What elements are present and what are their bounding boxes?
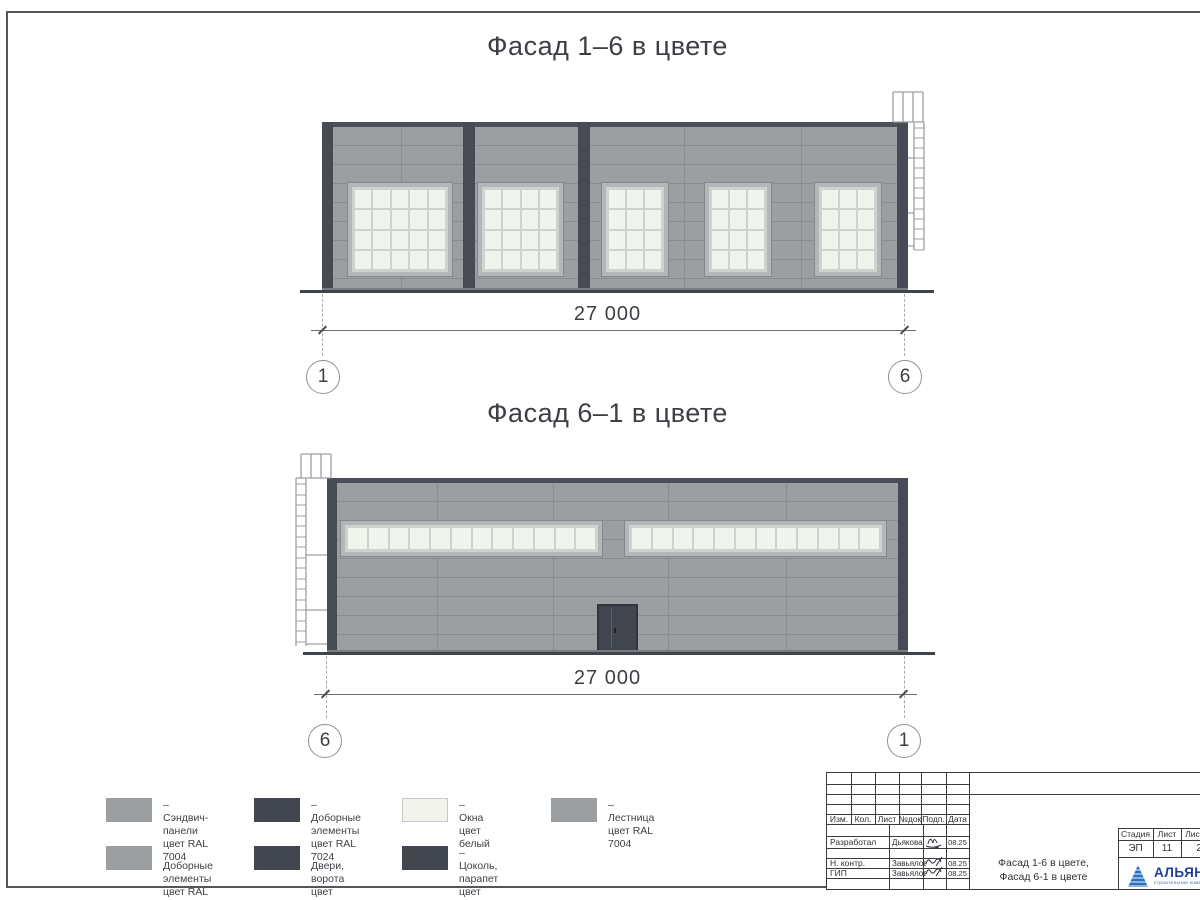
color-swatch xyxy=(106,798,152,822)
window-pane xyxy=(730,210,746,228)
window-pane xyxy=(355,210,371,228)
titleblock-line xyxy=(946,773,947,824)
tb-stage-header: Стадия xyxy=(1118,828,1153,840)
tb-list-value: 11 xyxy=(1153,840,1181,857)
tb-header-list: Лист xyxy=(875,814,899,824)
column xyxy=(463,122,475,290)
door-handle xyxy=(614,628,616,633)
titleblock-line xyxy=(827,804,969,805)
window-pane xyxy=(373,231,389,249)
window-pane xyxy=(858,210,874,228)
titleblock-line xyxy=(1153,828,1154,857)
window xyxy=(478,183,563,276)
window-pane xyxy=(712,251,728,269)
legend-label: – Сэндвич-панели xyxy=(163,799,208,838)
window-pane xyxy=(627,210,643,228)
window-pane xyxy=(822,210,838,228)
tb-date: 08.25 xyxy=(946,836,969,848)
window-pane xyxy=(777,528,796,549)
panel-seam xyxy=(668,483,669,652)
titleblock-line xyxy=(827,794,969,795)
window-pane xyxy=(452,528,471,549)
titleblock-line xyxy=(899,773,900,824)
window-pane xyxy=(369,528,388,549)
titleblock-line xyxy=(827,784,969,785)
company-logo-tagline: строительная компания xyxy=(1154,881,1200,886)
window-pane xyxy=(373,190,389,208)
axis-bubble-6: 6 xyxy=(308,724,342,758)
legend-label: – Доборные элементы xyxy=(163,847,213,886)
window-pane xyxy=(473,528,492,549)
entrance-door xyxy=(597,604,638,652)
tb-listov-header: Листов xyxy=(1181,828,1200,840)
dimension-label: 27 000 xyxy=(0,667,1200,690)
window-pane xyxy=(822,190,838,208)
titleblock-line xyxy=(827,824,969,825)
roof-ladder-icon xyxy=(888,88,936,260)
window-pane xyxy=(748,231,764,249)
panel-seam xyxy=(553,483,554,652)
column xyxy=(578,122,590,290)
titleblock-line xyxy=(1181,828,1182,857)
window-pane xyxy=(748,210,764,228)
axis-bubble-6: 6 xyxy=(888,360,922,394)
window-pane xyxy=(840,190,856,208)
legend-label: – Двери, ворота xyxy=(311,847,344,886)
window-pane xyxy=(694,528,713,549)
window-pane xyxy=(840,210,856,228)
titleblock-line xyxy=(827,814,969,815)
legend-label: – Окна xyxy=(459,799,490,825)
window-pane xyxy=(712,210,728,228)
color-swatch xyxy=(551,798,597,822)
window-pane xyxy=(576,528,595,549)
window-pane xyxy=(493,528,512,549)
ribbon-window xyxy=(625,521,886,556)
tb-listov-value: 2 xyxy=(1181,840,1200,857)
window-pane xyxy=(653,528,672,549)
window-pane xyxy=(355,251,371,269)
titleblock-line xyxy=(827,868,969,869)
tb-name: Завьялова xyxy=(889,868,926,878)
window xyxy=(602,183,668,276)
tb-stage-value: ЭП xyxy=(1118,840,1153,857)
color-swatch xyxy=(402,846,448,870)
window-pane xyxy=(858,190,874,208)
title-block: Изм. Кол. Лист №док Подп. Дата Разработа… xyxy=(826,772,1200,890)
window-pane xyxy=(429,210,445,228)
drawing-sheet: Фасад 1–6 в цвете 27 000 1 6 Фасад 6–1 в… xyxy=(0,0,1200,900)
window-pane xyxy=(485,251,501,269)
window-pane xyxy=(730,251,746,269)
titleblock-line xyxy=(1118,857,1200,858)
window-pane xyxy=(540,210,556,228)
window-pane xyxy=(712,190,728,208)
legend-label: – Цоколь, парапет xyxy=(459,847,498,886)
ground-line xyxy=(303,652,935,655)
legend-label: – Доборные элементы xyxy=(311,799,361,838)
window-pane xyxy=(522,190,538,208)
color-swatch xyxy=(402,798,448,822)
legend-sublabel: цвет RAL 7024 xyxy=(311,886,344,900)
window-pane xyxy=(503,190,519,208)
window-pane xyxy=(485,210,501,228)
window-pane xyxy=(645,231,661,249)
window-pane xyxy=(485,190,501,208)
window-pane xyxy=(609,251,625,269)
tb-name: Завьялова xyxy=(889,858,926,868)
window-pane xyxy=(858,251,874,269)
tb-header-izm: Изм. xyxy=(827,814,851,824)
corner-column xyxy=(322,122,333,290)
window-pane xyxy=(645,210,661,228)
panel-seam xyxy=(437,483,438,652)
titleblock-line xyxy=(969,773,970,889)
titleblock-line xyxy=(1118,828,1119,889)
window-pane xyxy=(348,528,367,549)
window-pane xyxy=(410,528,429,549)
window-pane xyxy=(712,231,728,249)
window-pane xyxy=(540,190,556,208)
window-pane xyxy=(822,231,838,249)
window-pane xyxy=(715,528,734,549)
window-pane xyxy=(736,528,755,549)
facade-1-6-title: Фасад 1–6 в цвете xyxy=(0,31,1200,62)
window-pane xyxy=(485,231,501,249)
window-pane xyxy=(674,528,693,549)
window-pane xyxy=(392,231,408,249)
facade-6-1-title: Фасад 6–1 в цвете xyxy=(0,398,1200,429)
titleblock-line xyxy=(946,824,947,889)
window-pane xyxy=(609,231,625,249)
titleblock-line xyxy=(851,773,852,824)
window-pane xyxy=(632,528,651,549)
tb-header-podp: Подп. xyxy=(921,814,946,824)
dimension-line xyxy=(311,330,916,331)
window-pane xyxy=(503,210,519,228)
window-pane xyxy=(556,528,575,549)
window-pane xyxy=(514,528,533,549)
window-pane xyxy=(609,190,625,208)
company-logo-icon xyxy=(1128,865,1148,887)
ground-line xyxy=(300,290,934,293)
color-swatch xyxy=(106,846,152,870)
window-pane xyxy=(410,210,426,228)
axis-bubble-1: 1 xyxy=(306,360,340,394)
window-pane xyxy=(645,251,661,269)
tb-name: Дьякова xyxy=(889,836,926,848)
door-leaf-divider xyxy=(611,608,612,648)
window-pane xyxy=(410,231,426,249)
panel-seam xyxy=(684,127,685,290)
titleblock-line xyxy=(827,836,969,837)
color-swatch xyxy=(254,846,300,870)
window-pane xyxy=(373,210,389,228)
ribbon-window xyxy=(341,521,602,556)
legend-sublabel: цвет RAL 7004 xyxy=(163,886,213,900)
window-pane xyxy=(522,251,538,269)
window-pane xyxy=(819,528,838,549)
tb-role: Н. контр. xyxy=(827,858,892,868)
titleblock-line xyxy=(1118,840,1200,841)
window-pane xyxy=(860,528,879,549)
titleblock-line xyxy=(889,824,890,889)
window-pane xyxy=(535,528,554,549)
legend-sublabel: цвет RAL 7024 xyxy=(459,886,498,900)
tb-list-header: Лист xyxy=(1153,828,1181,840)
window-pane xyxy=(840,251,856,269)
window-pane xyxy=(392,190,408,208)
dimension-line xyxy=(314,694,917,695)
tb-date: 08.25 xyxy=(946,868,969,878)
titleblock-line xyxy=(827,878,969,879)
window-pane xyxy=(392,251,408,269)
tb-header-ndok: №док xyxy=(899,814,921,824)
dimension-label: 27 000 xyxy=(0,303,1200,326)
panel-seam xyxy=(786,483,787,652)
titleblock-line xyxy=(921,773,922,824)
window-pane xyxy=(429,231,445,249)
tb-header-data: Дата xyxy=(946,814,969,824)
panel-seam xyxy=(801,127,802,290)
facade-6-1-drawing xyxy=(327,478,908,652)
titleblock-line xyxy=(923,824,924,889)
color-swatch xyxy=(254,798,300,822)
window-pane xyxy=(748,190,764,208)
window-pane xyxy=(540,231,556,249)
company-logo-name: АЛЬЯНС xyxy=(1154,865,1200,880)
window-pane xyxy=(645,190,661,208)
window-pane xyxy=(540,251,556,269)
window-pane xyxy=(730,231,746,249)
window-pane xyxy=(627,190,643,208)
window-pane xyxy=(355,190,371,208)
titleblock-line xyxy=(827,848,969,849)
facade-1-6-drawing xyxy=(322,122,908,290)
window xyxy=(815,183,881,276)
titleblock-line xyxy=(875,773,876,824)
window-pane xyxy=(431,528,450,549)
window-pane xyxy=(373,251,389,269)
window xyxy=(348,183,452,276)
tb-role: ГИП xyxy=(827,868,892,878)
window-pane xyxy=(627,231,643,249)
window-pane xyxy=(522,231,538,249)
window-pane xyxy=(798,528,817,549)
window-pane xyxy=(429,251,445,269)
window-pane xyxy=(627,251,643,269)
tb-date: 08.25 xyxy=(946,858,969,868)
window-pane xyxy=(730,190,746,208)
window-pane xyxy=(748,251,764,269)
tb-header-kol: Кол. xyxy=(851,814,875,824)
window-pane xyxy=(355,231,371,249)
parapet xyxy=(327,478,908,483)
window-pane xyxy=(410,251,426,269)
window-pane xyxy=(522,210,538,228)
window-pane xyxy=(392,210,408,228)
window-pane xyxy=(858,231,874,249)
tb-doc-name: Фасад 1-6 в цвете, Фасад 6-1 в цвете xyxy=(969,828,1118,889)
window-pane xyxy=(840,528,859,549)
window-pane xyxy=(757,528,776,549)
window-pane xyxy=(503,251,519,269)
corner-column xyxy=(898,478,908,652)
titleblock-line xyxy=(969,794,1200,795)
legend-sublabel: цвет RAL 7004 xyxy=(608,825,654,851)
window-pane xyxy=(822,251,838,269)
parapet xyxy=(322,122,908,127)
axis-bubble-1: 1 xyxy=(887,724,921,758)
window-pane xyxy=(429,190,445,208)
legend-label: – Лестница xyxy=(608,799,654,825)
titleblock-line xyxy=(827,858,969,859)
window-pane xyxy=(410,190,426,208)
tb-role: Разработал xyxy=(827,836,892,848)
window-pane xyxy=(609,210,625,228)
window xyxy=(705,183,771,276)
roof-ladder-icon xyxy=(290,450,338,662)
window-pane xyxy=(390,528,409,549)
window-pane xyxy=(503,231,519,249)
titleblock-line xyxy=(1118,828,1200,829)
window-pane xyxy=(840,231,856,249)
